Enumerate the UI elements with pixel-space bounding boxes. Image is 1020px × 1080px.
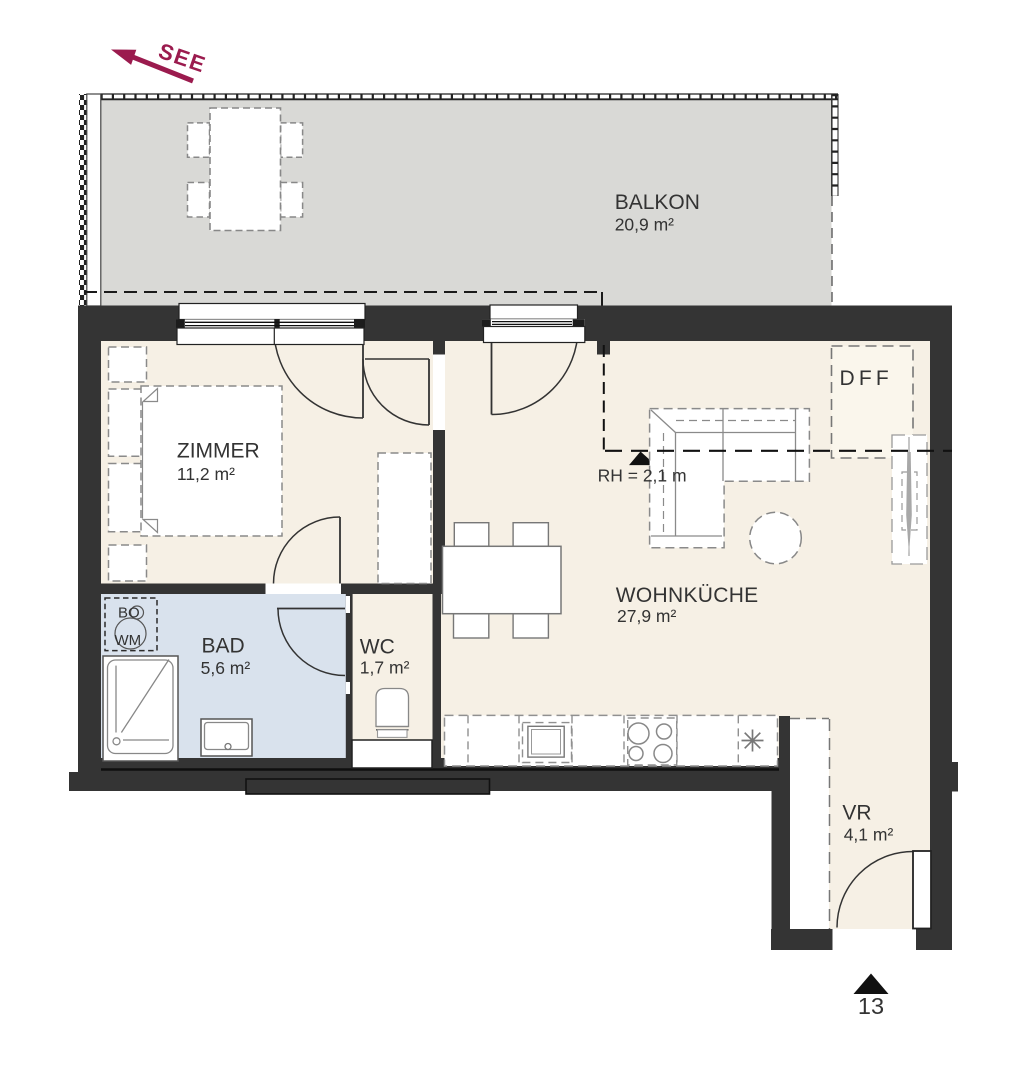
svg-text:11,2 m²: 11,2 m²	[177, 464, 235, 484]
svg-text:1,7 m²: 1,7 m²	[360, 657, 410, 677]
svg-text:WM: WM	[115, 632, 142, 649]
svg-text:WC: WC	[360, 636, 395, 659]
svg-text:4,1 m²: 4,1 m²	[844, 825, 894, 845]
svg-text:BAD: BAD	[202, 634, 245, 657]
svg-text:BO: BO	[118, 605, 140, 622]
svg-text:5,6 m²: 5,6 m²	[201, 658, 251, 678]
svg-text:27,9 m²: 27,9 m²	[617, 606, 676, 626]
svg-text:ZIMMER: ZIMMER	[177, 440, 260, 463]
svg-text:WOHNKÜCHE: WOHNKÜCHE	[616, 584, 759, 607]
svg-text:DFF: DFF	[840, 367, 893, 390]
svg-text:VR: VR	[842, 802, 871, 825]
svg-text:20,9 m²: 20,9 m²	[615, 215, 674, 235]
svg-text:RH = 2,1 m: RH = 2,1 m	[598, 466, 687, 486]
svg-text:13: 13	[858, 993, 884, 1019]
svg-text:BALKON: BALKON	[615, 191, 700, 214]
